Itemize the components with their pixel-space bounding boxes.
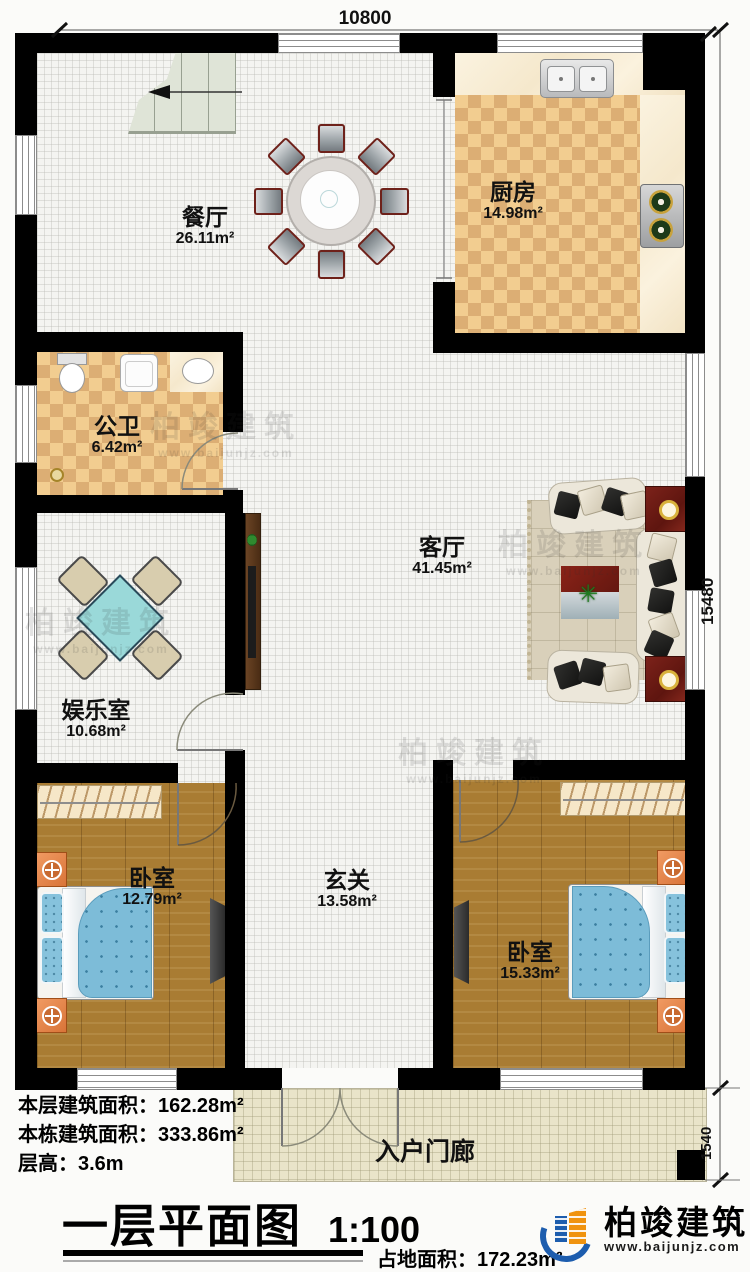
floor-plan-canvas: ✳ (0, 0, 750, 1272)
land-area-line: 占地面积：172.23m² (377, 1243, 563, 1272)
title-underline (63, 1250, 363, 1256)
plan-title: 一层平面图 (62, 1200, 302, 1252)
plan-title-block: 一层平面图1:100 (62, 1190, 420, 1256)
room-label-living: 客厅 41.45m² (372, 535, 512, 578)
building-area-line: 本栋建筑面积：333.86m² (18, 1121, 244, 1150)
area-info-block: 本层建筑面积：162.28m² 本栋建筑面积：333.86m² 层高：3.6m (18, 1092, 244, 1179)
room-area: 15.33m² (460, 965, 600, 983)
logo-building-orange-icon (569, 1208, 586, 1244)
room-area: 10.68m² (26, 723, 166, 741)
room-label-entertainment: 娱乐室 10.68m² (26, 698, 166, 741)
stairs-arrow-head (148, 85, 170, 99)
dimension-porch: 1540 (698, 1108, 715, 1160)
company-logo: 柏竣建筑 www.baijunjz.com (540, 1202, 748, 1258)
building-area-label: 本栋建筑面积： (18, 1124, 158, 1146)
title-underline-thin (63, 1260, 363, 1262)
room-label-dining: 餐厅 26.11m² (135, 205, 275, 248)
room-area: 12.79m² (82, 891, 222, 909)
dimension-right: 15480 (698, 555, 718, 625)
room-name: 客厅 (372, 535, 512, 560)
logo-text: 柏竣建筑 www.baijunjz.com (604, 1206, 748, 1254)
entertainment-door-arc (177, 693, 243, 750)
logo-building-blue-icon (555, 1216, 567, 1242)
room-name: 餐厅 (135, 205, 275, 230)
bedroom-right-door-arc (460, 780, 518, 842)
bedroom-left-door-arc (178, 783, 236, 845)
room-name: 娱乐室 (26, 698, 166, 723)
room-label-bedroom-left: 卧室 12.79m² (82, 866, 222, 909)
storey-height-label: 层高： (18, 1153, 78, 1175)
room-name: 玄关 (277, 868, 417, 893)
floor-area-line: 本层建筑面积：162.28m² (18, 1092, 244, 1121)
floor-area-label: 本层建筑面积： (18, 1095, 158, 1117)
logo-website: www.baijunjz.com (604, 1239, 748, 1254)
land-area-label: 占地面积： (377, 1249, 477, 1271)
room-name: 卧室 (82, 866, 222, 891)
logo-company-name: 柏竣建筑 (604, 1206, 748, 1239)
room-area: 26.11m² (135, 230, 275, 248)
bathroom-door-arc (182, 433, 238, 489)
doors-and-dimensions-overlay (0, 0, 750, 1272)
storey-height-value: 3.6m (78, 1153, 124, 1175)
room-name: 公卫 (47, 414, 187, 439)
dimension-top: 10800 (330, 8, 400, 30)
logo-icon (540, 1202, 596, 1258)
room-label-bedroom-right: 卧室 15.33m² (460, 940, 600, 983)
room-area: 41.45m² (372, 560, 512, 578)
room-name: 卧室 (460, 940, 600, 965)
room-area: 14.98m² (443, 205, 583, 223)
room-label-foyer: 玄关 13.58m² (277, 868, 417, 911)
floor-area-value: 162.28m² (158, 1095, 244, 1117)
room-label-porch: 入户门廊 (375, 1132, 475, 1168)
room-area: 6.42m² (47, 439, 187, 457)
building-area-value: 333.86m² (158, 1124, 244, 1146)
storey-height-line: 层高：3.6m (18, 1150, 244, 1179)
room-name: 厨房 (443, 180, 583, 205)
room-label-kitchen: 厨房 14.98m² (443, 180, 583, 223)
room-area: 13.58m² (277, 893, 417, 911)
room-label-bathroom: 公卫 6.42m² (47, 414, 187, 457)
